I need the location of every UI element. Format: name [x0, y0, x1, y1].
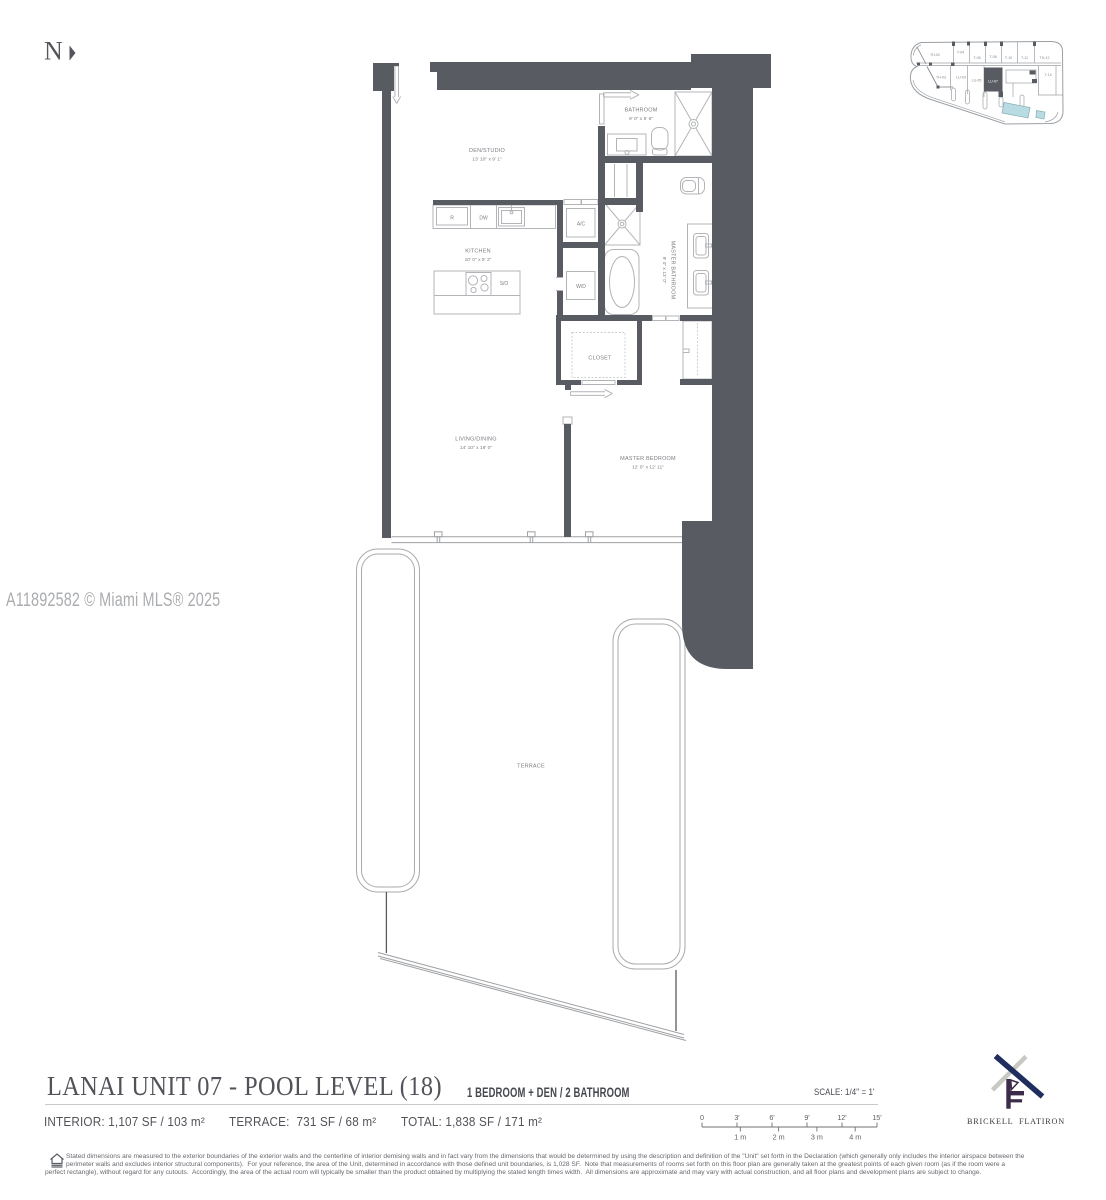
svg-text:9' 0" x 5' 6": 9' 0" x 5' 6" — [629, 116, 653, 122]
svg-text:DEN/STUDIO: DEN/STUDIO — [469, 148, 505, 154]
svg-text:12' 0" x 12' 11": 12' 0" x 12' 11" — [632, 465, 664, 471]
svg-text:LU-05: LU-05 — [972, 79, 982, 83]
svg-text:W/D: W/D — [576, 284, 586, 290]
svg-text:DW: DW — [479, 216, 488, 222]
svg-text:2 m: 2 m — [773, 1133, 785, 1142]
svg-text:TERRACE: TERRACE — [517, 764, 545, 770]
svg-text:MASTER BEDROOM: MASTER BEDROOM — [620, 456, 676, 462]
svg-text:T-10: T-10 — [1005, 56, 1012, 60]
svg-text:9' 0" x 13' 0": 9' 0" x 13' 0" — [661, 257, 667, 284]
svg-text:T-04: T-04 — [957, 51, 964, 55]
svg-text:BRICKELL FLATIRON: BRICKELL FLATIRON — [967, 1117, 1065, 1126]
svg-text:T-14: T-14 — [1044, 73, 1051, 77]
svg-text:14' 10" x 19' 0": 14' 10" x 19' 0" — [460, 445, 493, 451]
svg-text:3 m: 3 m — [811, 1133, 823, 1142]
svg-text:BATHROOM: BATHROOM — [625, 108, 658, 114]
svg-text:T-11: T-11 — [1021, 56, 1028, 60]
svg-text:15': 15' — [872, 1113, 882, 1122]
svg-text:MASTER BATHROOM: MASTER BATHROOM — [670, 241, 676, 300]
svg-text:13' 10" x 9' 1": 13' 10" x 9' 1" — [472, 157, 502, 163]
svg-text:LU-03: LU-03 — [956, 76, 966, 80]
svg-text:T-08: T-08 — [989, 55, 996, 59]
svg-text:R: R — [450, 216, 454, 222]
svg-text:CLOSET: CLOSET — [588, 356, 612, 362]
svg-text:TH-02: TH-02 — [930, 53, 940, 57]
svg-text:0: 0 — [700, 1113, 704, 1122]
svg-text:LIVING/DINING: LIVING/DINING — [455, 437, 496, 443]
svg-text:A/C: A/C — [577, 222, 586, 228]
svg-text:KITCHEN: KITCHEN — [465, 249, 491, 255]
svg-text:10' 0" x 9' 2": 10' 0" x 9' 2" — [465, 257, 492, 263]
svg-text:3': 3' — [734, 1113, 740, 1122]
svg-text:S/O: S/O — [500, 281, 509, 287]
svg-text:9': 9' — [804, 1113, 810, 1122]
svg-text:TH-12: TH-12 — [1040, 56, 1050, 60]
svg-text:T-06: T-06 — [973, 56, 980, 60]
svg-text:12': 12' — [837, 1113, 847, 1122]
svg-text:1 m: 1 m — [734, 1133, 746, 1142]
svg-text:N: N — [44, 37, 63, 66]
svg-text:LU-07: LU-07 — [988, 80, 998, 84]
svg-text:4 m: 4 m — [849, 1133, 861, 1142]
svg-text:TH-03: TH-03 — [936, 76, 946, 80]
svg-text:6': 6' — [769, 1113, 775, 1122]
